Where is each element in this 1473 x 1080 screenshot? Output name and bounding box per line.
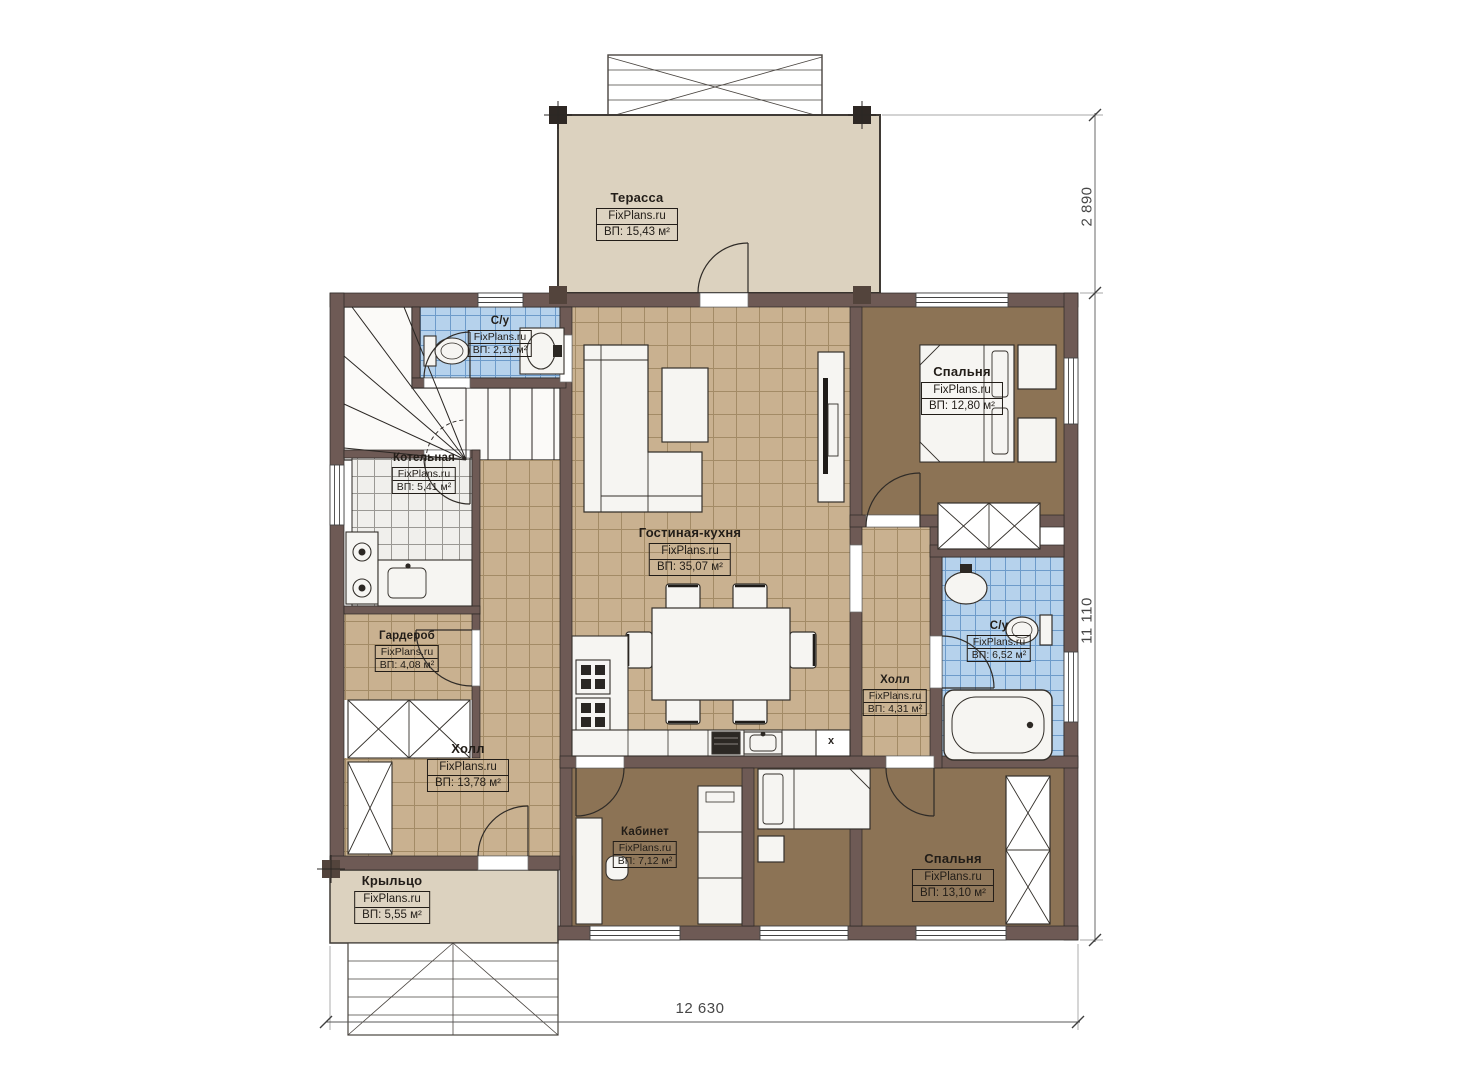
room-label-terrace: Терасса FixPlans.ru ВП: 15,43 м² [596, 191, 678, 241]
room-area: ВП: 6,52 м² [968, 649, 1030, 661]
nightstand [1018, 345, 1056, 389]
room-label-bedroom-top: Спальня FixPlans.ru ВП: 12,80 м² [921, 365, 1003, 415]
room-info-box: FixPlans.ru ВП: 6,52 м² [967, 635, 1031, 662]
room-info-box: FixPlans.ru ВП: 2,19 м² [468, 330, 532, 357]
room-label-bedroom-bottom: Спальня FixPlans.ru ВП: 13,10 м² [912, 852, 994, 902]
bathtub-icon [944, 690, 1052, 760]
chair [626, 632, 652, 668]
nightstand [758, 836, 784, 862]
desk [576, 818, 602, 924]
room-name: Кабинет [613, 826, 677, 839]
room-name: Холл [427, 742, 509, 757]
room-area: ВП: 4,31 м² [864, 703, 926, 715]
window-icon [1064, 358, 1078, 424]
window-icon [590, 926, 680, 940]
room-brand: FixPlans.ru [469, 331, 531, 344]
room-info-box: FixPlans.ru ВП: 13,78 м² [427, 759, 509, 792]
room-info-box: FixPlans.ru ВП: 7,12 м² [613, 841, 677, 868]
room-name: Спальня [912, 852, 994, 867]
room-info-box: FixPlans.ru ВП: 35,07 м² [649, 543, 731, 576]
room-brand: FixPlans.ru [968, 636, 1030, 649]
window-icon [330, 465, 344, 525]
room-brand: FixPlans.ru [650, 544, 730, 560]
room-area: ВП: 2,19 м² [469, 344, 531, 356]
window-icon [916, 293, 1008, 307]
post-icon [549, 286, 567, 304]
terrace-canopy [608, 55, 822, 117]
bed [758, 769, 870, 829]
room-brand: FixPlans.ru [376, 646, 438, 659]
hall-small-floor [862, 527, 930, 756]
kitchen-sink-icon [744, 732, 782, 754]
room-area: ВП: 13,78 м² [428, 776, 508, 791]
room-label-porch: Крыльцо FixPlans.ru ВП: 5,55 м² [354, 874, 430, 924]
dishwasher-icon [712, 732, 740, 754]
room-info-box: FixPlans.ru ВП: 15,43 м² [596, 208, 678, 241]
room-label-office: Кабинет FixPlans.ru ВП: 7,12 м² [613, 826, 677, 870]
closet [348, 762, 392, 854]
room-area: ВП: 35,07 м² [650, 560, 730, 575]
chair [666, 698, 700, 724]
room-brand: FixPlans.ru [864, 690, 926, 703]
room-area: ВП: 4,08 м² [376, 659, 438, 671]
room-area: ВП: 5,55 м² [355, 908, 429, 923]
room-brand: FixPlans.ru [393, 468, 455, 481]
nightstand [1018, 418, 1056, 462]
closet [1006, 776, 1050, 924]
room-info-box: FixPlans.ru ВП: 12,80 м² [921, 382, 1003, 415]
entry-steps [348, 943, 558, 1035]
room-label-hall-small: Холл FixPlans.ru ВП: 4,31 м² [863, 674, 927, 718]
room-label-living-kitchen: Гостиная-кухня FixPlans.ru ВП: 35,07 м² [639, 526, 741, 576]
room-name: Гостиная-кухня [639, 526, 741, 541]
room-brand: FixPlans.ru [614, 842, 676, 855]
room-name: Крыльцо [354, 874, 430, 889]
room-name: С/у [967, 620, 1031, 633]
chair [790, 632, 816, 668]
room-area: ВП: 13,10 м² [913, 886, 993, 901]
room-label-wardrobe: Гардероб FixPlans.ru ВП: 4,08 м² [375, 630, 439, 674]
room-area: ВП: 7,12 м² [614, 855, 676, 867]
toilet-icon [424, 336, 469, 366]
cabinet [698, 786, 742, 924]
room-name: Холл [863, 674, 927, 687]
room-name: Котельная [392, 452, 456, 465]
dimension-right-top: 2 890 [1079, 152, 1096, 262]
room-info-box: FixPlans.ru ВП: 4,31 м² [863, 689, 927, 716]
room-brand: FixPlans.ru [922, 383, 1002, 399]
chair [733, 698, 767, 724]
window-icon [760, 926, 848, 940]
chair [666, 584, 700, 610]
room-info-box: FixPlans.ru ВП: 4,08 м² [375, 645, 439, 672]
coffee-table [662, 368, 708, 442]
dimension-right-main: 11 110 [1079, 566, 1096, 676]
room-area: ВП: 12,80 м² [922, 399, 1002, 414]
room-label-wc-top: С/у FixPlans.ru ВП: 2,19 м² [468, 315, 532, 359]
window-icon [916, 926, 1006, 940]
closet [938, 503, 1040, 549]
room-name: Спальня [921, 365, 1003, 380]
room-brand: FixPlans.ru [913, 870, 993, 886]
room-area: ВП: 15,43 м² [597, 225, 677, 240]
dining-table [652, 608, 790, 700]
room-name: Терасса [596, 191, 678, 206]
room-brand: FixPlans.ru [428, 760, 508, 776]
room-label-wc-right: С/у FixPlans.ru ВП: 6,52 м² [967, 620, 1031, 664]
boiler-counter [378, 560, 472, 606]
kitchen-counter-bottom [572, 730, 850, 756]
room-info-box: FixPlans.ru ВП: 5,41 м² [392, 467, 456, 494]
chair [733, 584, 767, 610]
room-area: ВП: 5,41 м² [393, 481, 455, 493]
window-icon [1064, 652, 1078, 722]
tv-unit [818, 352, 844, 502]
room-info-box: FixPlans.ru ВП: 5,55 м² [354, 891, 430, 924]
boiler-stove-icon [346, 532, 378, 604]
window-icon [478, 293, 523, 307]
room-label-hall-main: Холл FixPlans.ru ВП: 13,78 м² [427, 742, 509, 792]
room-label-boiler: Котельная FixPlans.ru ВП: 5,41 м² [392, 452, 456, 496]
room-brand: FixPlans.ru [355, 892, 429, 908]
post-icon [853, 286, 871, 304]
room-brand: FixPlans.ru [597, 209, 677, 225]
room-name: Гардероб [375, 630, 439, 643]
washer-mark-label: x [828, 735, 834, 747]
room-info-box: FixPlans.ru ВП: 13,10 м² [912, 869, 994, 902]
floor-plan-canvas: Терасса FixPlans.ru ВП: 15,43 м² С/у Fix… [0, 0, 1473, 1080]
room-name: С/у [468, 315, 532, 328]
dimension-bottom: 12 630 [645, 1000, 755, 1017]
